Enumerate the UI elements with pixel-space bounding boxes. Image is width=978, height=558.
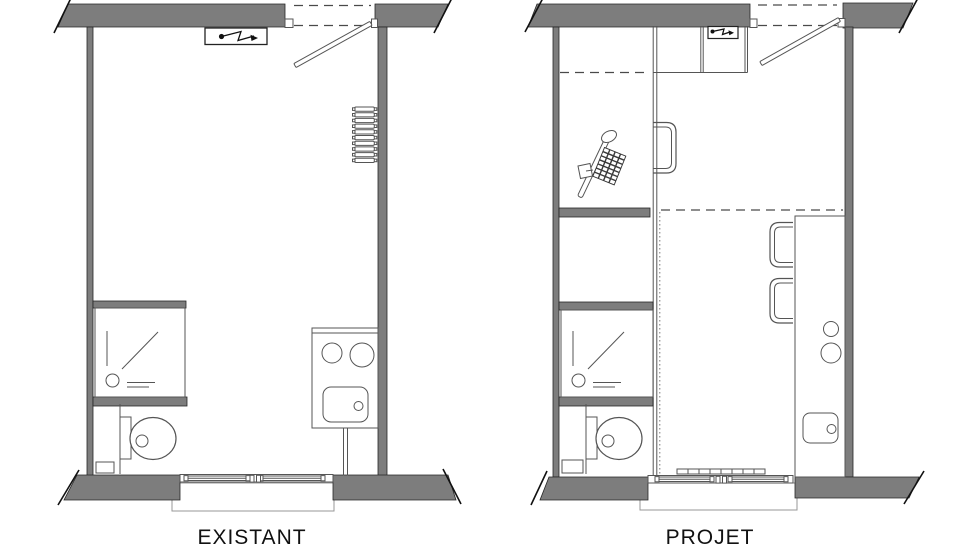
shower-icon <box>559 302 653 406</box>
window-sill <box>640 483 797 510</box>
monitor-stand-icon <box>578 164 593 179</box>
existing-plan-label: EXISTANT <box>197 526 306 549</box>
entry-door <box>750 5 845 66</box>
burner-icon <box>350 343 374 367</box>
door-jamb-icon <box>372 19 378 28</box>
heater-icon <box>677 469 765 474</box>
burner-icon <box>322 343 342 363</box>
bar-chair-icon <box>770 279 793 324</box>
project-plan-label: PROJET <box>666 526 755 549</box>
bar-chair-icon <box>770 223 793 268</box>
mouse-icon <box>599 128 618 145</box>
project-plan: PROJET <box>525 0 924 549</box>
window-sill <box>172 483 334 511</box>
top-wall-right-block <box>843 0 918 33</box>
bottom-wall-left <box>58 470 180 505</box>
toilet-icon <box>586 404 642 474</box>
entry-door <box>285 6 378 68</box>
right-wall <box>845 27 853 477</box>
duct-icon <box>96 462 114 473</box>
bar-counter-icon <box>795 216 845 477</box>
electrical-outlet-icon <box>205 28 267 45</box>
electrical-outlet-icon <box>708 27 738 39</box>
left-wall <box>553 27 559 477</box>
burner-icon <box>824 322 839 337</box>
door-leaf-icon <box>760 18 841 66</box>
floorplan-canvas: EXISTANT <box>0 0 978 558</box>
desk-icon <box>577 128 625 198</box>
burner-icon <box>821 343 841 363</box>
duct-icon <box>562 460 583 473</box>
door-leaf-icon <box>294 21 372 67</box>
bottom-wall-left <box>531 471 648 505</box>
left-wall <box>87 27 93 477</box>
radiator-icon <box>353 107 377 163</box>
right-wall <box>378 27 387 477</box>
floorplan-page: EXISTANT <box>0 0 978 558</box>
existing-plan: EXISTANT <box>54 0 461 549</box>
bottom-wall-right <box>333 469 461 504</box>
shower-icon <box>93 301 187 406</box>
window-icon <box>648 476 793 484</box>
kitchenette-icon <box>312 328 378 476</box>
desk-partition-wall <box>559 208 650 217</box>
door-jamb-icon <box>285 19 293 28</box>
window-icon <box>180 475 333 483</box>
door-jamb-icon <box>750 19 757 28</box>
sliding-partition <box>653 26 660 476</box>
toilet-icon <box>120 404 176 474</box>
